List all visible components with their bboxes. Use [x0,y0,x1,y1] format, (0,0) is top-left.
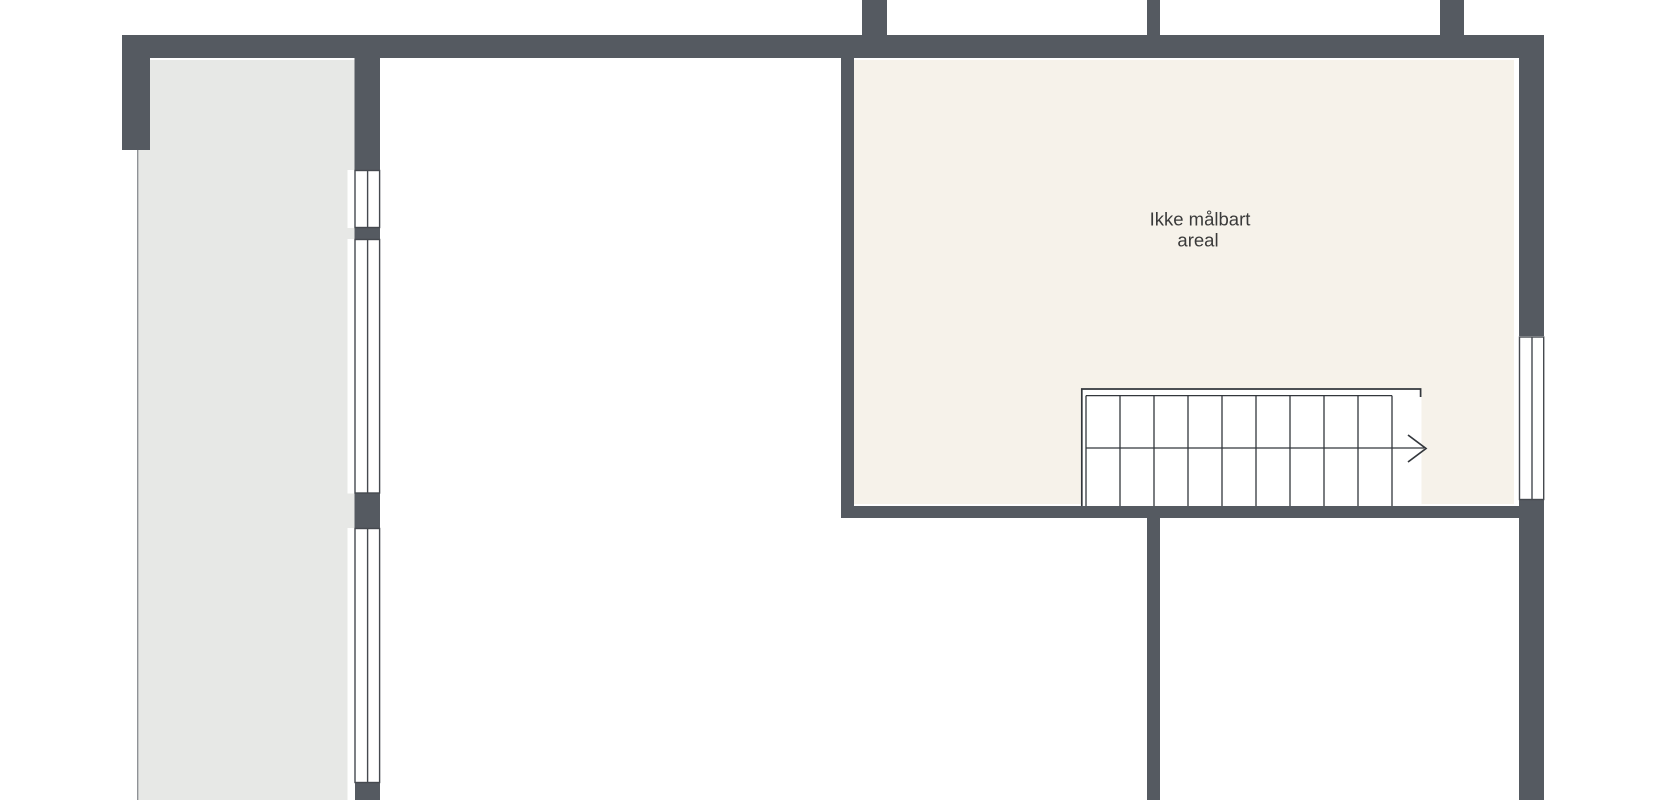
svg-text:areal: areal [1177,230,1218,251]
svg-text:Ikke målbart: Ikke målbart [1150,209,1251,230]
